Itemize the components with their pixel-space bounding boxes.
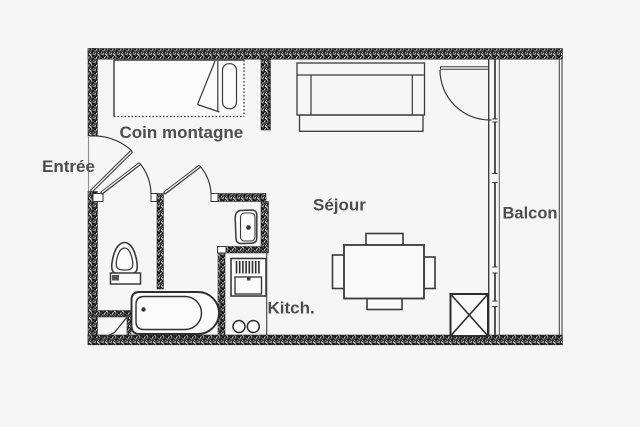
- svg-text:Balcon: Balcon: [503, 205, 558, 223]
- svg-text:Séjour: Séjour: [313, 196, 366, 215]
- svg-text:Kitch.: Kitch.: [268, 299, 315, 318]
- svg-text:Coin montagne: Coin montagne: [120, 123, 244, 142]
- svg-text:Entrée: Entrée: [42, 157, 95, 176]
